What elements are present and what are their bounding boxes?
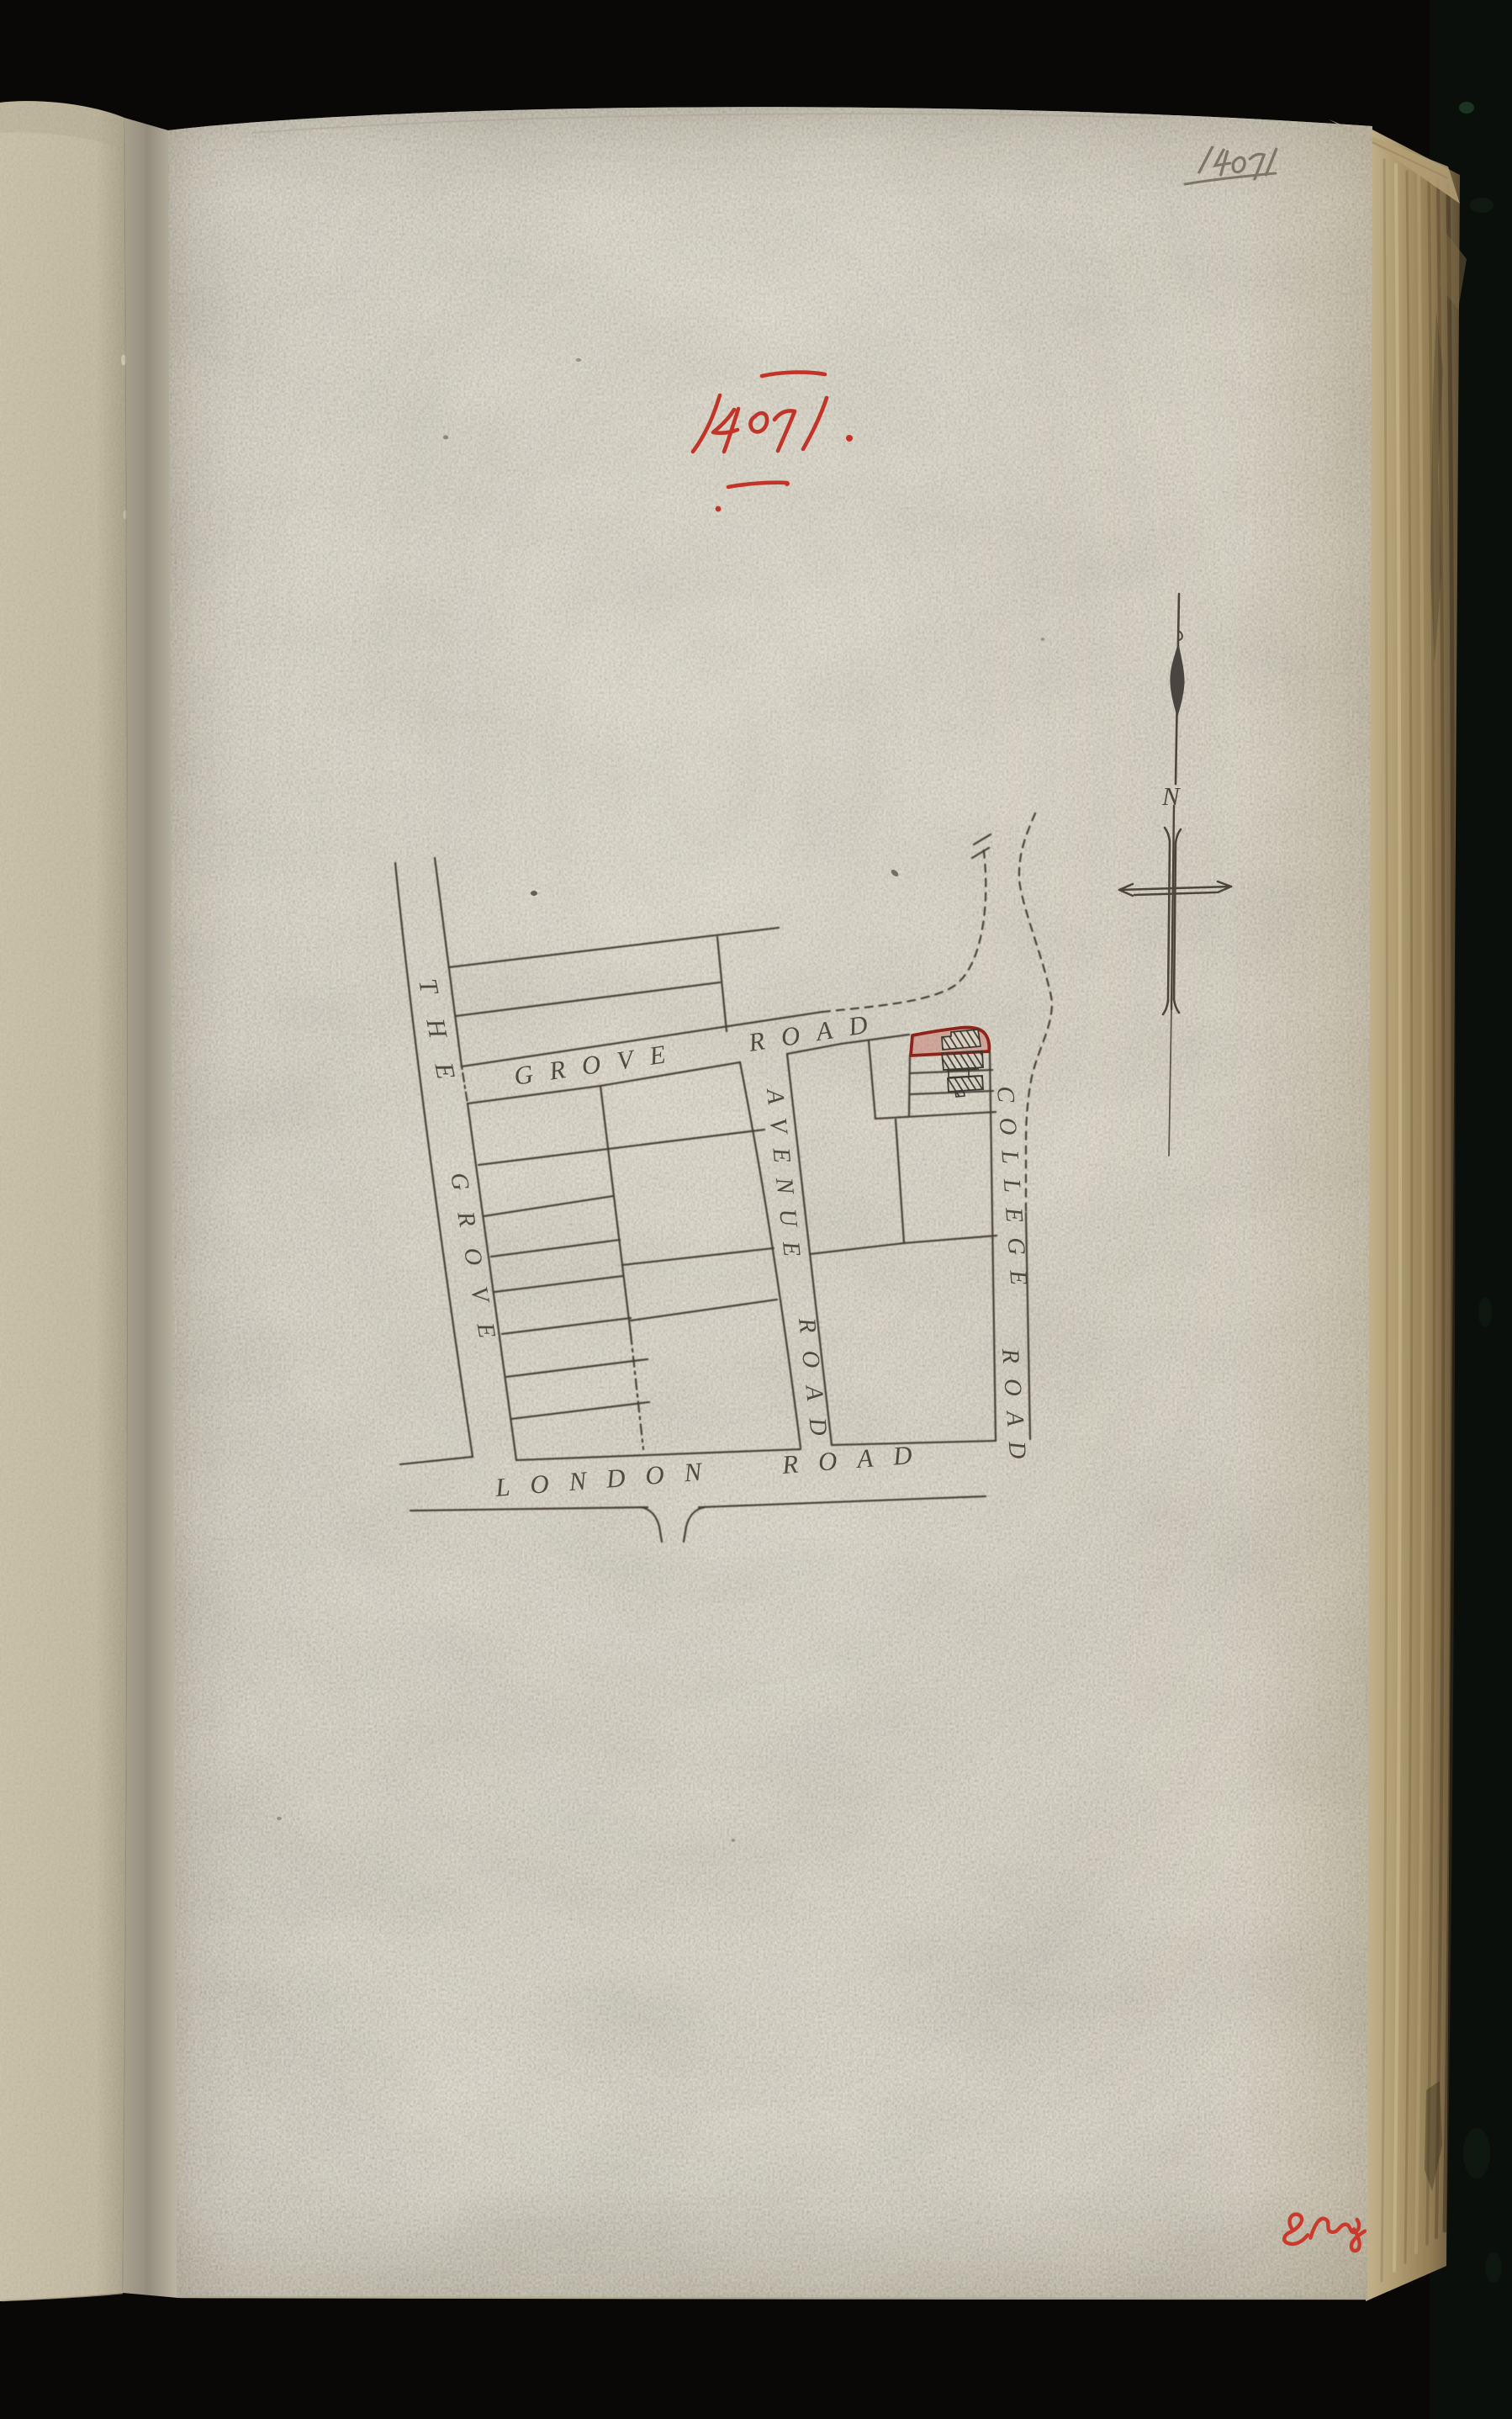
svg-text:N: N	[1161, 781, 1182, 811]
